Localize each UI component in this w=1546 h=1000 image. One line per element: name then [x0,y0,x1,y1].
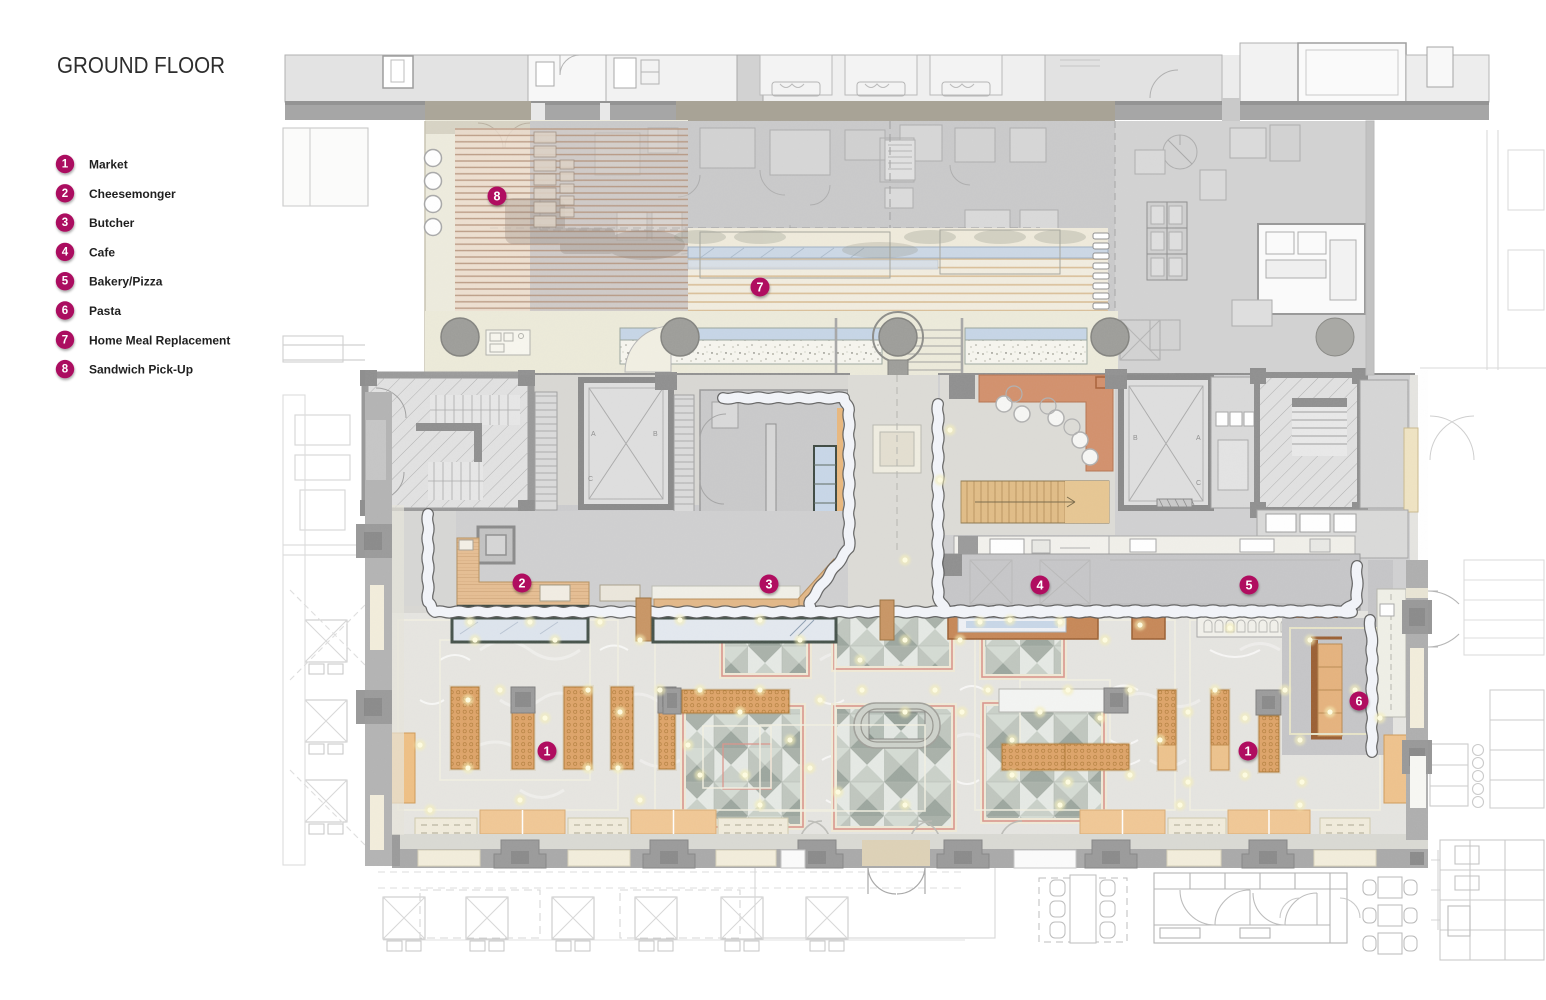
svg-text:Home Meal Replacement: Home Meal Replacement [89,333,230,347]
svg-text:8: 8 [62,364,69,376]
svg-text:Cheesemonger: Cheesemonger [89,187,176,201]
svg-text:3: 3 [766,578,773,592]
svg-text:Cafe: Cafe [89,245,115,259]
svg-text:Butcher: Butcher [89,216,135,230]
svg-text:Bakery/Pizza: Bakery/Pizza [89,275,163,289]
svg-text:6: 6 [1356,695,1363,709]
svg-text:7: 7 [62,334,68,346]
svg-text:4: 4 [1037,579,1044,593]
svg-text:1: 1 [1245,745,1252,759]
svg-text:Sandwich Pick-Up: Sandwich Pick-Up [89,363,193,377]
svg-text:2: 2 [62,188,68,200]
svg-text:Market: Market [89,158,128,172]
svg-text:2: 2 [519,577,526,591]
svg-text:7: 7 [757,281,764,295]
svg-text:1: 1 [62,159,69,171]
svg-text:5: 5 [1246,579,1253,593]
svg-text:1: 1 [544,745,551,759]
svg-text:GROUND FLOOR: GROUND FLOOR [57,52,225,78]
svg-text:8: 8 [494,190,501,204]
svg-text:5: 5 [62,276,69,288]
svg-text:3: 3 [62,217,68,229]
svg-text:Pasta: Pasta [89,304,121,318]
svg-text:6: 6 [62,305,68,317]
svg-text:4: 4 [62,246,69,258]
